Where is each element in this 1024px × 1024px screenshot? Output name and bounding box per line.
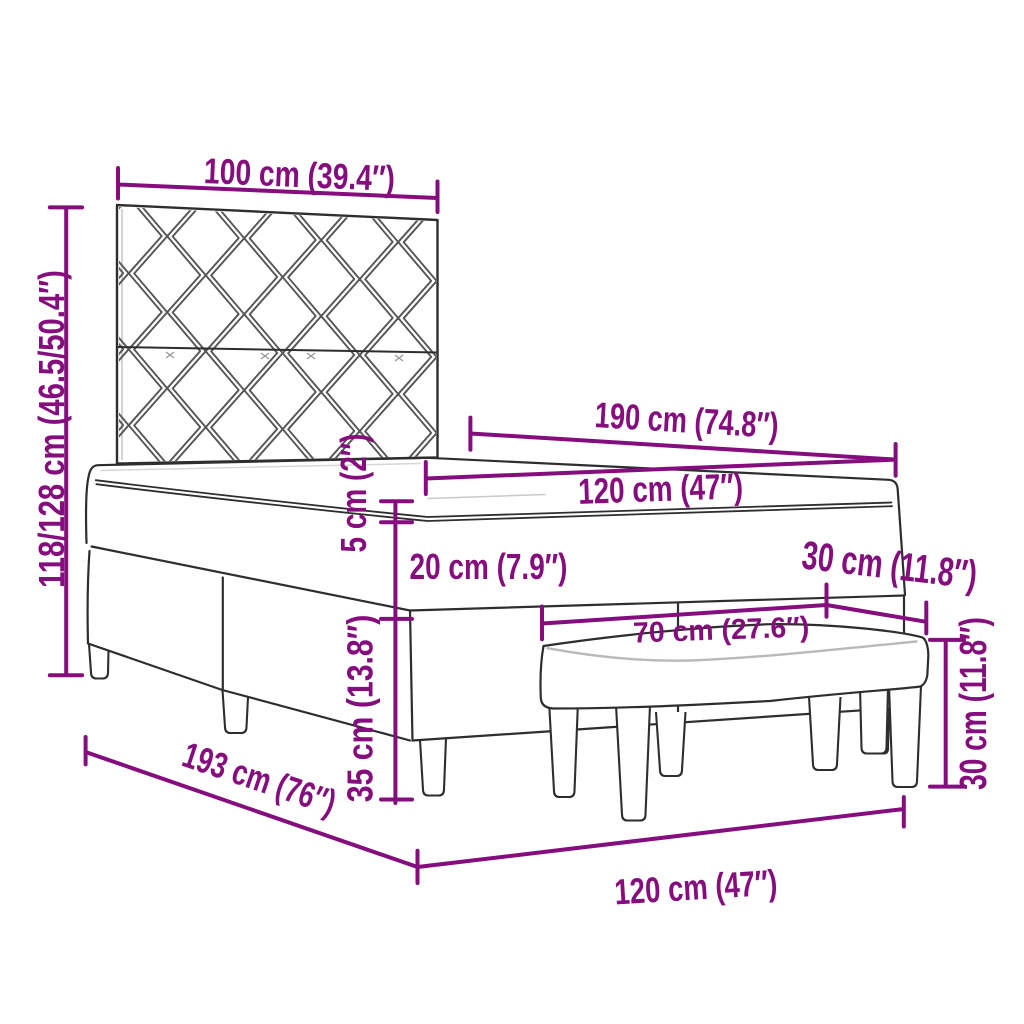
svg-text:120 cm (47″): 120 cm (47″) xyxy=(577,466,743,512)
svg-text:35 cm (13.8″): 35 cm (13.8″) xyxy=(341,615,381,803)
svg-text:30 cm (11.8″): 30 cm (11.8″) xyxy=(953,617,995,790)
svg-text:5 cm (2″): 5 cm (2″) xyxy=(334,434,374,553)
svg-text:70 cm (27.6″): 70 cm (27.6″) xyxy=(633,611,810,649)
svg-text:100 cm (39.4″): 100 cm (39.4″) xyxy=(203,151,396,199)
svg-text:20 cm (7.9″): 20 cm (7.9″) xyxy=(410,547,568,587)
svg-text:118/128 cm (46.5/50.4″): 118/128 cm (46.5/50.4″) xyxy=(31,270,72,588)
